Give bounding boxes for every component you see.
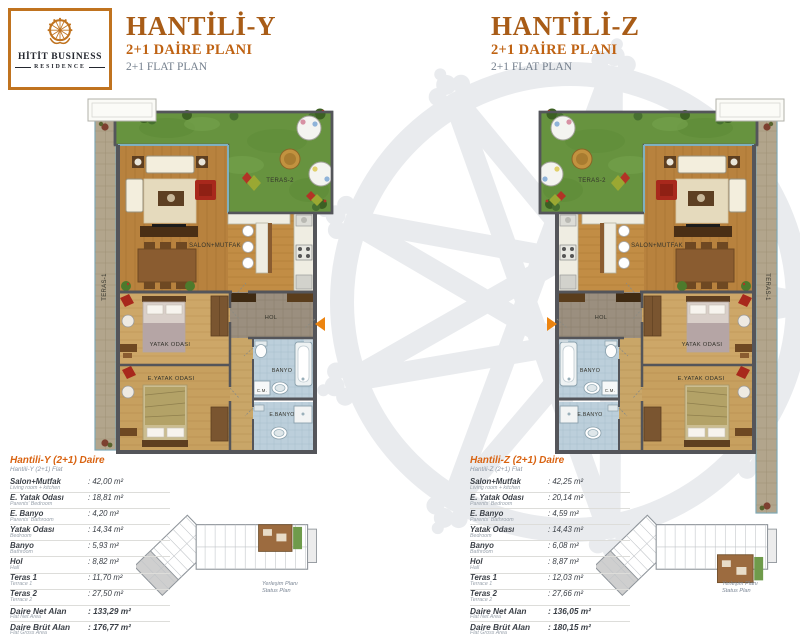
banyo-label: BANYO	[272, 368, 292, 374]
spec-row: Teras 2Terrace 2: 27,50 m²	[10, 589, 170, 605]
spec-row: Salon+MutfakLiving room + kitchen: 42,25…	[470, 477, 630, 492]
spec-row: Teras 2Terrace 2: 27,66 m²	[470, 589, 630, 605]
spec-row: Teras 1Terrace 1: 12,03 m²	[470, 573, 630, 589]
spec-row-labels: E. Yatak OdasıParents' Bedroom	[10, 494, 88, 507]
spec-row-labels: Daire Brüt AlanFlat Gross Area	[10, 623, 88, 634]
room-sublabel: Parents' Bedroom	[470, 502, 548, 508]
planter-box	[716, 99, 784, 121]
spec-row-labels: E. BanyoParents' Bathroom	[470, 510, 548, 523]
floor-plan-svg: SALON+MUTFAKTERAS-2HOLBANYOC.M.E.BANYOYA…	[82, 95, 347, 465]
teras1-label: TERAS-1	[102, 273, 108, 301]
spec-row: Daire Net AlanFlat Net Area: 136,05 m²	[470, 605, 630, 622]
room-sublabel: Hall	[10, 566, 88, 572]
spec-row-labels: Salon+MutfakLiving room + kitchen	[470, 478, 548, 491]
unit-header-hantili-y: HANTİLİ-Y 2+1 DAİRE PLANI 2+1 FLAT PLAN	[126, 13, 276, 73]
yatak-odasi-label: YATAK ODASI	[150, 342, 191, 348]
e-yatak-odasi-label: E.YATAK ODASI	[148, 376, 195, 382]
spec-row-labels: HolHall	[10, 558, 88, 571]
spec-row-labels: Daire Net AlanFlat Net Area	[470, 607, 548, 621]
room-area-value: : 8,87 m²	[548, 558, 630, 566]
spec-row-labels: Teras 1Terrace 1	[10, 574, 88, 587]
room-sublabel: Bedroom	[10, 534, 88, 540]
brand-subname: RESIDENCE	[11, 64, 109, 70]
salon-mutfak-label: SALON+MUTFAK	[631, 243, 683, 249]
e-banyo-label: E.BANYO	[269, 412, 294, 418]
highlighted-unit	[259, 525, 292, 552]
spec-row: Daire Net AlanFlat Net Area: 133,29 m²	[10, 605, 170, 622]
room-area-value: : 133,29 m²	[88, 607, 170, 615]
room-sublabel: Terrace 2	[470, 598, 548, 604]
table-title-z: Hantili-Z (2+1) Daire	[470, 455, 630, 466]
brand-logo: HİTİT BUSINESS RESIDENCE	[8, 8, 112, 90]
spec-row: Salon+MutfakLiving room + kitchen: 42,00…	[10, 477, 170, 492]
teras2-label: TERAS-2	[578, 178, 606, 184]
dash-ornament-right	[89, 67, 105, 68]
room-sublabel: Terrace 2	[10, 598, 88, 604]
room-sublabel: Terrace 1	[10, 582, 88, 588]
room-area-value: : 14,34 m²	[88, 526, 170, 534]
floor-plan-hantili-y: SALON+MUTFAKTERAS-2HOLBANYOC.M.E.BANYOYA…	[82, 95, 347, 470]
room-area-value: : 176,77 m²	[88, 623, 170, 631]
room-area-value: : 11,70 m²	[88, 574, 170, 582]
spec-row: E. BanyoParents' Bathroom: 4,59 m²	[470, 508, 630, 524]
spec-row: HolHall: 8,87 m²	[470, 556, 630, 572]
spec-row-labels: Teras 1Terrace 1	[470, 574, 548, 587]
room-area-value: : 14,43 m²	[548, 526, 630, 534]
subtitle-tr-y: 2+1 DAİRE PLANI	[126, 42, 276, 59]
room-sublabel: Living room + kitchen	[470, 486, 548, 492]
spec-row: Yatak OdasıBedroom: 14,43 m²	[470, 524, 630, 540]
room-area-value: : 136,05 m²	[548, 607, 630, 615]
room-sublabel: Flat Net Area	[10, 615, 88, 621]
spec-row-labels: Daire Brüt AlanFlat Gross Area	[470, 623, 548, 634]
spec-row-labels: BanyoBathroom	[10, 542, 88, 555]
room-sublabel: Bathroom	[10, 550, 88, 556]
room-sublabel: Parents' Bedroom	[10, 502, 88, 508]
room-sublabel: Flat Net Area	[470, 615, 548, 621]
table-subtitle-z: Hantili-Z (2+1) Flat	[470, 466, 630, 474]
brochure-page: { "brand": { "logo_line1": "HİTİT BUSINE…	[0, 0, 800, 634]
subtitle-en-y: 2+1 FLAT PLAN	[126, 61, 276, 73]
room-area-value: : 42,00 m²	[88, 478, 170, 486]
spec-row-labels: HolHall	[470, 558, 548, 571]
highlighted-unit	[717, 555, 753, 583]
room-area-value: : 42,25 m²	[548, 478, 630, 486]
spec-row-labels: E. Yatak OdasıParents' Bedroom	[470, 494, 548, 507]
dash-ornament-left	[15, 67, 31, 68]
room-sublabel: Bedroom	[470, 534, 548, 540]
subtitle-tr-z: 2+1 DAİRE PLANI	[491, 42, 640, 59]
subtitle-en-z: 2+1 FLAT PLAN	[491, 61, 640, 73]
room-sublabel: Bathroom	[470, 550, 548, 556]
room-sublabel: Parents' Bathroom	[10, 518, 88, 524]
spec-row-labels: Daire Net AlanFlat Net Area	[10, 607, 88, 621]
e-banyo-label: E.BANYO	[577, 412, 602, 418]
spec-row: Daire Brüt AlanFlat Gross Area: 180,15 m…	[470, 621, 630, 634]
spec-row-labels: Yatak OdasıBedroom	[470, 526, 548, 539]
room-area-value: : 27,66 m²	[548, 590, 630, 598]
spec-row-labels: Salon+MutfakLiving room + kitchen	[10, 478, 88, 491]
salon-mutfak-label: SALON+MUTFAK	[189, 243, 241, 249]
room-area-value: : 18,81 m²	[88, 494, 170, 502]
spec-row-labels: Teras 2Terrace 2	[470, 590, 548, 603]
planter-box	[88, 99, 156, 121]
yatak-odasi-label: YATAK ODASI	[682, 342, 723, 348]
room-area-value: : 180,15 m²	[548, 623, 630, 631]
room-area-value: : 20,14 m²	[548, 494, 630, 502]
cm-label: C.M.	[257, 388, 267, 393]
spec-rows-y: Salon+MutfakLiving room + kitchen: 42,00…	[10, 477, 170, 634]
spec-row: BanyoBathroom: 5,93 m²	[10, 540, 170, 556]
room-area-value: : 5,93 m²	[88, 542, 170, 550]
page-title-z: HANTİLİ-Z	[491, 13, 640, 40]
room-label: Hol	[470, 558, 548, 566]
hol-label: HOL	[265, 315, 277, 321]
spec-row: Yatak OdasıBedroom: 14,34 m²	[10, 524, 170, 540]
keyplan-caption: Yerleşim Planı Status Plan	[262, 581, 298, 595]
spec-row-labels: Teras 2Terrace 2	[10, 590, 88, 603]
room-area-value: : 4,59 m²	[548, 510, 630, 518]
hol-label: HOL	[595, 315, 607, 321]
spec-row: E. Yatak OdasıParents' Bedroom: 18,81 m²	[10, 492, 170, 508]
spec-row: E. BanyoParents' Bathroom: 4,20 m²	[10, 508, 170, 524]
room-area-value: : 4,20 m²	[88, 510, 170, 518]
unit-header-hantili-z: HANTİLİ-Z 2+1 DAİRE PLANI 2+1 FLAT PLAN	[491, 13, 640, 73]
hittite-sun-icon	[41, 14, 79, 52]
spec-table-hantili-z: Hantili-Z (2+1) Daire Hantili-Z (2+1) Fl…	[470, 455, 630, 634]
banyo-label: BANYO	[580, 368, 600, 374]
spec-row: Daire Brüt AlanFlat Gross Area: 176,77 m…	[10, 621, 170, 634]
room-sublabel: Terrace 1	[470, 582, 548, 588]
spec-row: E. Yatak OdasıParents' Bedroom: 20,14 m²	[470, 492, 630, 508]
room-label: Hol	[10, 558, 88, 566]
spec-table-hantili-y: Hantili-Y (2+1) Daire Hantili-Y (2+1) Fl…	[10, 455, 170, 634]
spec-row-labels: E. BanyoParents' Bathroom	[10, 510, 88, 523]
room-sublabel: Parents' Bathroom	[470, 518, 548, 524]
teras1-label: TERAS-1	[764, 273, 770, 301]
room-area-value: : 6,08 m²	[548, 542, 630, 550]
keyplan-caption: Yerleşim Planı Status Plan	[722, 581, 758, 595]
spec-row: HolHall: 8,82 m²	[10, 556, 170, 572]
spec-row-labels: Yatak OdasıBedroom	[10, 526, 88, 539]
spec-rows-z: Salon+MutfakLiving room + kitchen: 42,25…	[470, 477, 630, 634]
table-subtitle-y: Hantili-Y (2+1) Flat	[10, 466, 170, 474]
spec-row: BanyoBathroom: 6,08 m²	[470, 540, 630, 556]
table-title-y: Hantili-Y (2+1) Daire	[10, 455, 170, 466]
room-area-value: : 12,03 m²	[548, 574, 630, 582]
spec-row-labels: BanyoBathroom	[470, 542, 548, 555]
brand-name: HİTİT BUSINESS	[11, 52, 109, 62]
room-area-value: : 8,82 m²	[88, 558, 170, 566]
spec-row: Teras 1Terrace 1: 11,70 m²	[10, 573, 170, 589]
room-area-value: : 27,50 m²	[88, 590, 170, 598]
cm-label: C.M.	[605, 388, 615, 393]
teras2-label: TERAS-2	[266, 178, 294, 184]
page-title-y: HANTİLİ-Y	[126, 13, 276, 40]
e-yatak-odasi-label: E.YATAK ODASI	[678, 376, 725, 382]
room-sublabel: Living room + kitchen	[10, 486, 88, 492]
room-sublabel: Hall	[470, 566, 548, 572]
